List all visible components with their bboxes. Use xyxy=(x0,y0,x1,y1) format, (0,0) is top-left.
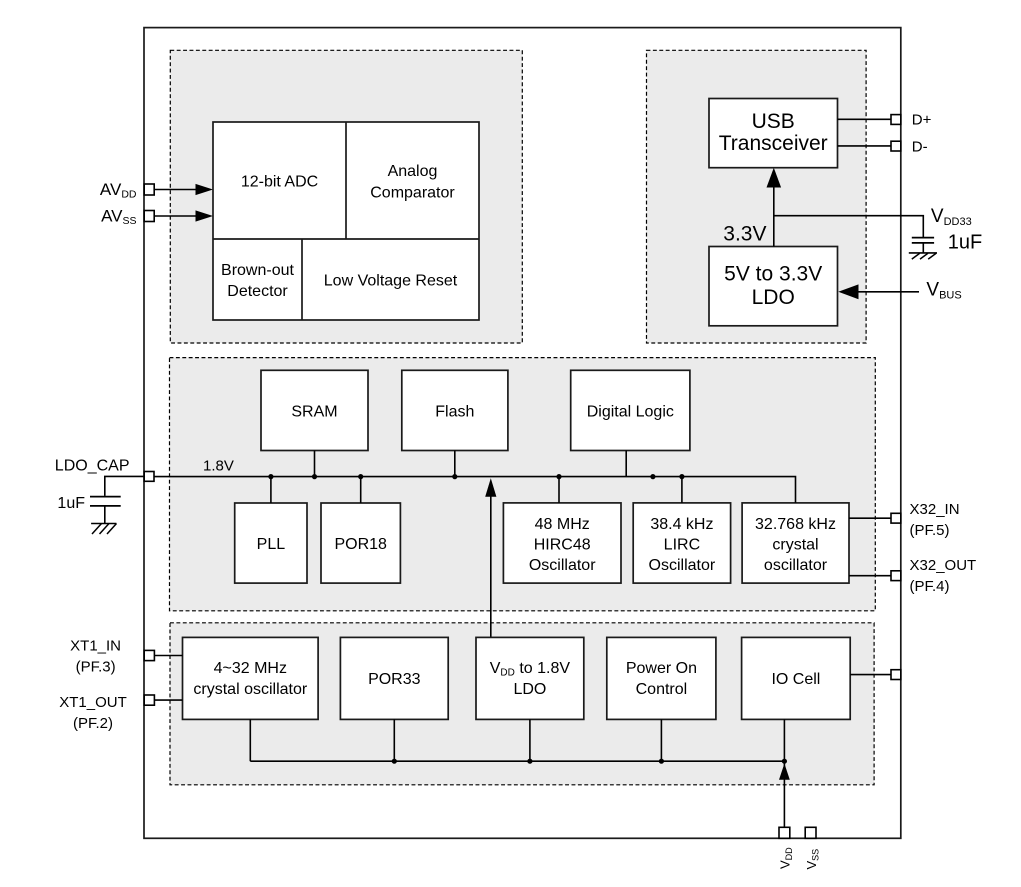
svg-text:PLL: PLL xyxy=(257,536,286,553)
svg-text:12-bit ADC: 12-bit ADC xyxy=(241,174,318,191)
svg-text:Digital Logic: Digital Logic xyxy=(587,403,674,420)
svg-text:Flash: Flash xyxy=(435,403,474,420)
svg-text:LDO: LDO xyxy=(513,681,546,698)
svg-text:IO Cell: IO Cell xyxy=(771,671,820,688)
svg-text:1uF: 1uF xyxy=(57,495,85,512)
svg-text:XT1_IN: XT1_IN xyxy=(70,637,121,654)
svg-text:Power On: Power On xyxy=(626,660,697,677)
svg-text:X32_OUT: X32_OUT xyxy=(910,557,977,574)
svg-text:LIRC: LIRC xyxy=(664,536,700,553)
svg-text:Transceiver: Transceiver xyxy=(719,132,828,155)
svg-text:POR18: POR18 xyxy=(334,536,387,553)
svg-text:(PF.3): (PF.3) xyxy=(76,658,116,675)
svg-text:Control: Control xyxy=(636,681,688,698)
svg-text:1uF: 1uF xyxy=(948,232,982,254)
svg-text:LDO: LDO xyxy=(752,286,795,309)
svg-text:POR33: POR33 xyxy=(368,671,421,688)
svg-text:D+: D+ xyxy=(912,112,932,129)
svg-text:LDO_CAP: LDO_CAP xyxy=(55,458,130,475)
svg-text:crystal oscillator: crystal oscillator xyxy=(193,681,307,698)
svg-text:HIRC48: HIRC48 xyxy=(534,536,591,553)
svg-text:crystal: crystal xyxy=(772,536,818,553)
svg-text:Detector: Detector xyxy=(227,283,288,300)
svg-text:SRAM: SRAM xyxy=(291,403,337,420)
svg-text:Brown-out: Brown-out xyxy=(221,262,294,279)
svg-text:Analog: Analog xyxy=(388,163,438,180)
svg-text:(PF.2): (PF.2) xyxy=(73,715,113,732)
svg-text:32.768 kHz: 32.768 kHz xyxy=(755,516,836,533)
svg-text:XT1_OUT: XT1_OUT xyxy=(59,694,127,711)
svg-text:USB: USB xyxy=(752,110,795,133)
svg-text:5V to 3.3V: 5V to 3.3V xyxy=(724,263,822,286)
svg-text:1.8V: 1.8V xyxy=(203,457,234,474)
svg-text:4~32 MHz: 4~32 MHz xyxy=(214,660,287,677)
svg-text:D-: D- xyxy=(912,138,928,155)
svg-text:(PF.4): (PF.4) xyxy=(910,578,950,595)
svg-text:48 MHz: 48 MHz xyxy=(535,516,590,533)
svg-text:Low Voltage Reset: Low Voltage Reset xyxy=(324,273,458,290)
svg-text:3.3V: 3.3V xyxy=(723,223,766,246)
svg-text:Oscillator: Oscillator xyxy=(529,557,596,574)
svg-text:oscillator: oscillator xyxy=(764,557,828,574)
svg-text:Comparator: Comparator xyxy=(370,185,455,202)
svg-text:X32_IN: X32_IN xyxy=(910,501,960,518)
svg-text:38.4 kHz: 38.4 kHz xyxy=(650,516,713,533)
svg-text:(PF.5): (PF.5) xyxy=(910,522,950,539)
svg-text:Oscillator: Oscillator xyxy=(649,557,716,574)
